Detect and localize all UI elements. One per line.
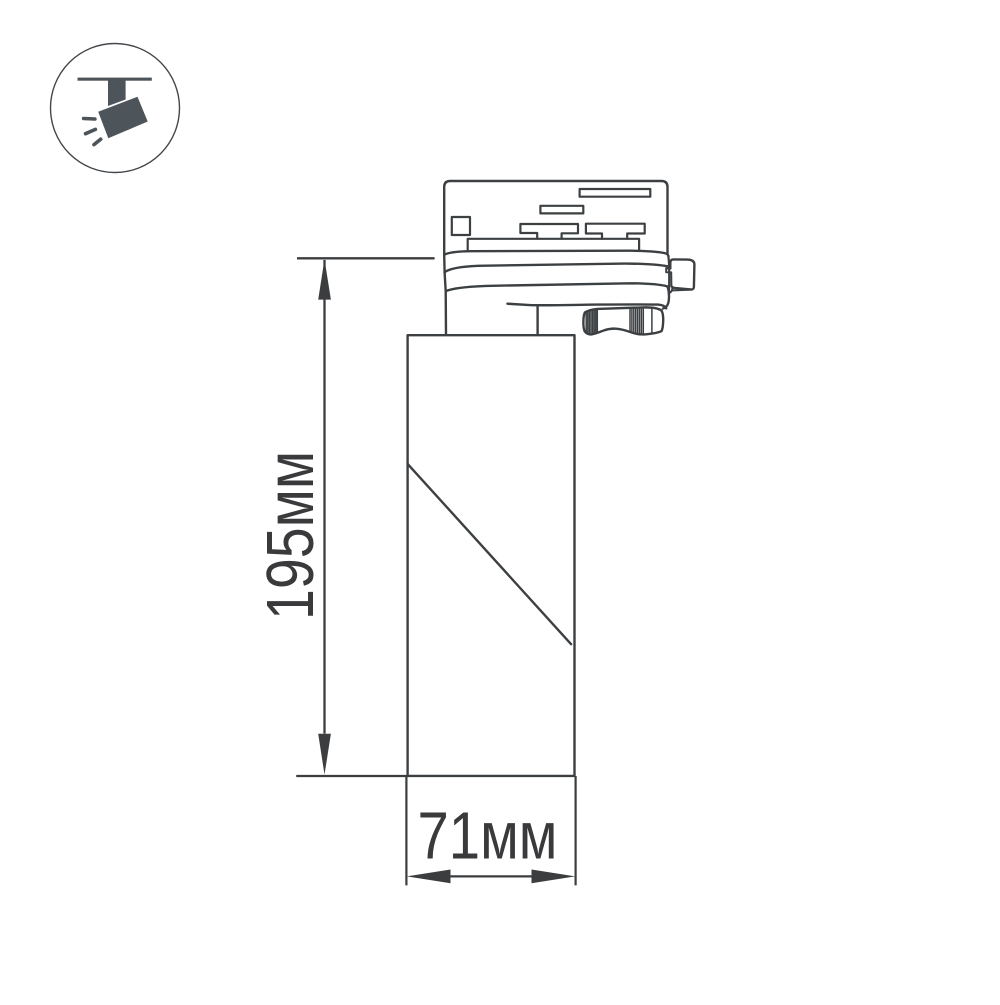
svg-text:195мм: 195мм: [253, 451, 328, 620]
svg-text:71мм: 71мм: [418, 799, 558, 874]
